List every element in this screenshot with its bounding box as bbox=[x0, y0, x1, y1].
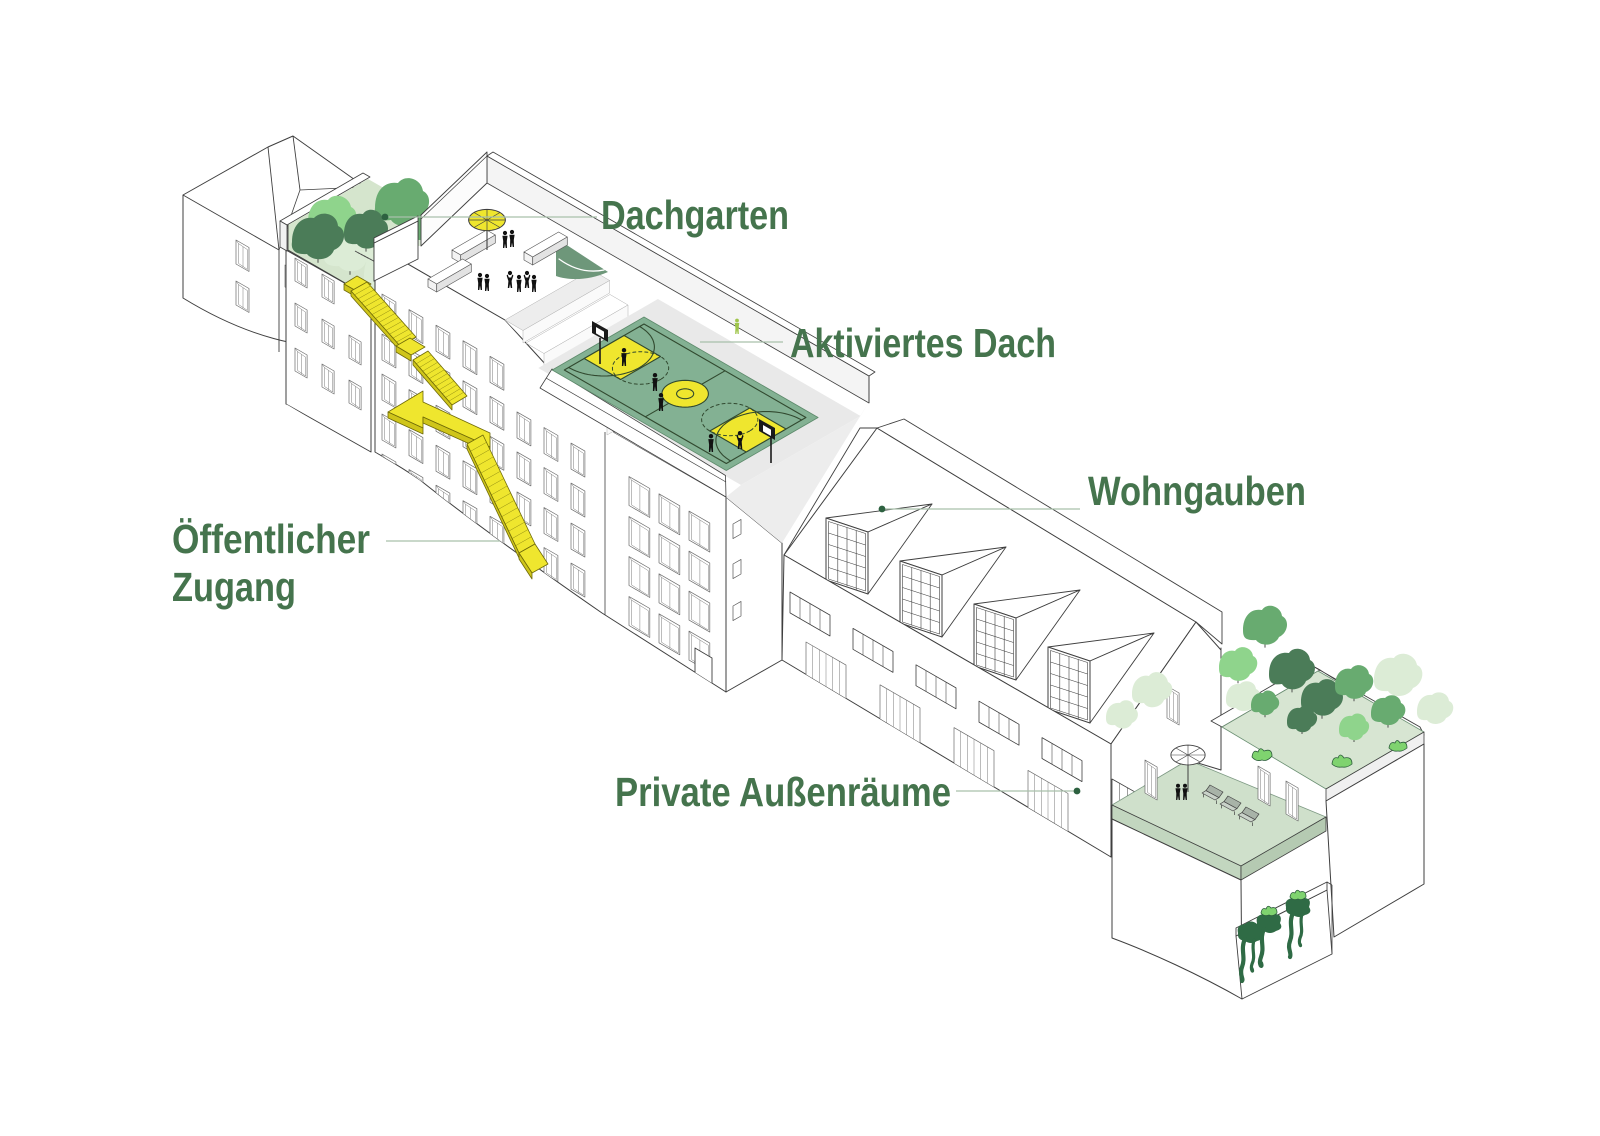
svg-text:Öffentlicher: Öffentlicher bbox=[172, 516, 370, 562]
svg-text:Wohngauben: Wohngauben bbox=[1088, 468, 1306, 514]
svg-text:Zugang: Zugang bbox=[172, 564, 296, 610]
svg-text:Dachgarten: Dachgarten bbox=[601, 192, 789, 238]
svg-text:Aktiviertes Dach: Aktiviertes Dach bbox=[790, 320, 1056, 366]
svg-text:Private Außenräume: Private Außenräume bbox=[615, 769, 951, 815]
